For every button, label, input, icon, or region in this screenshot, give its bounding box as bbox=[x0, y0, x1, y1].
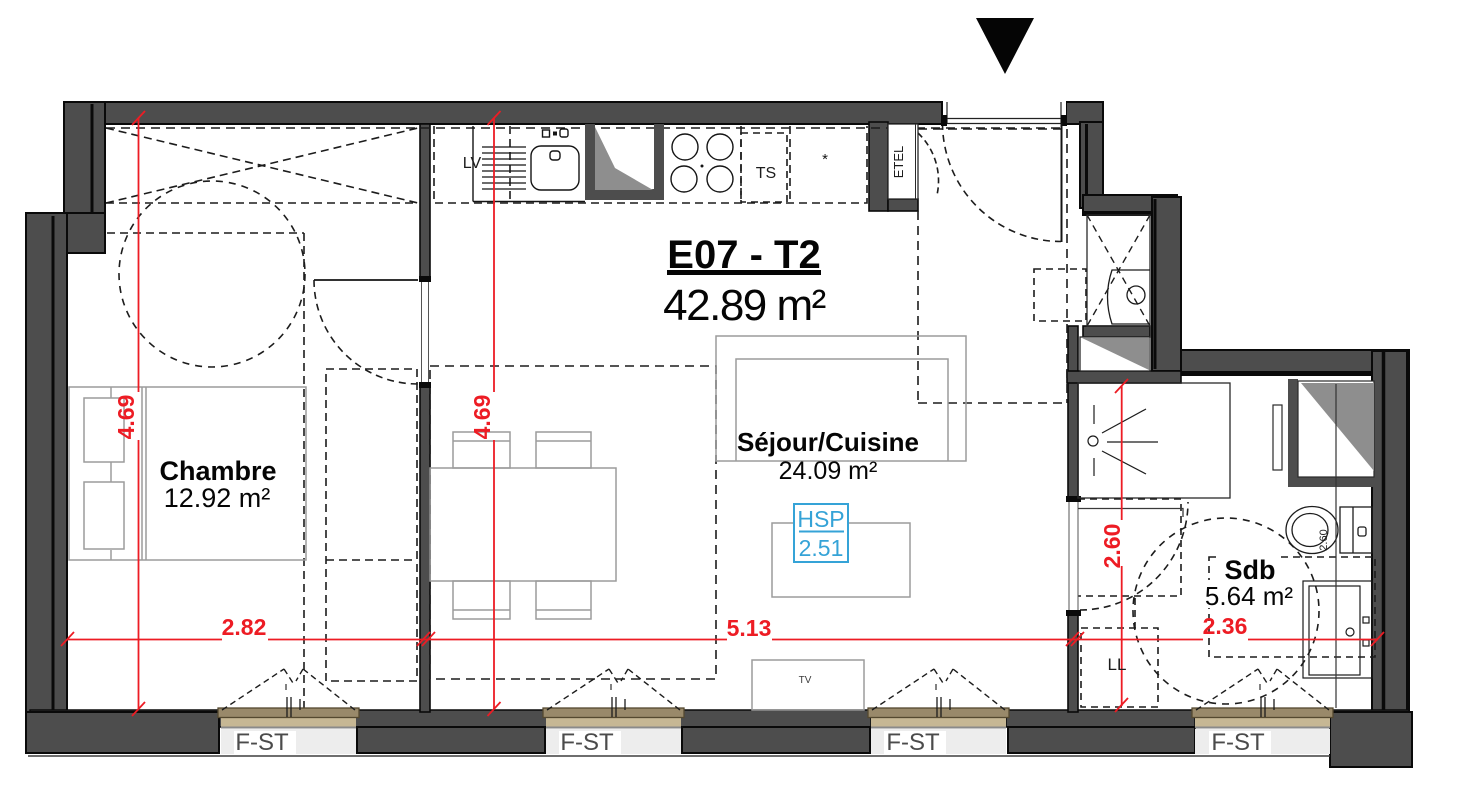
svg-text:TV: TV bbox=[799, 675, 812, 686]
svg-text:2.36: 2.36 bbox=[1203, 613, 1248, 639]
svg-text:42.89 m²: 42.89 m² bbox=[663, 281, 825, 330]
svg-text:4.69: 4.69 bbox=[469, 395, 495, 440]
svg-text:5.13: 5.13 bbox=[727, 615, 772, 641]
svg-text:F-ST: F-ST bbox=[235, 729, 289, 756]
svg-text:LL: LL bbox=[1108, 655, 1127, 674]
svg-text:HSP: HSP bbox=[797, 506, 844, 532]
svg-text:LV: LV bbox=[463, 155, 482, 172]
svg-text:2.82: 2.82 bbox=[222, 614, 267, 640]
svg-text:*: * bbox=[822, 151, 828, 168]
svg-text:5.64 m²: 5.64 m² bbox=[1205, 581, 1293, 611]
svg-text:12.92 m²: 12.92 m² bbox=[164, 483, 271, 513]
svg-text:F-ST: F-ST bbox=[886, 729, 940, 756]
svg-text:4.69: 4.69 bbox=[113, 395, 139, 440]
svg-text:TS: TS bbox=[756, 165, 776, 182]
svg-text:Séjour/Cuisine: Séjour/Cuisine bbox=[737, 427, 919, 457]
svg-text:ETEL: ETEL bbox=[891, 146, 906, 179]
svg-text:F-ST: F-ST bbox=[560, 729, 614, 756]
svg-text:2.51: 2.51 bbox=[799, 535, 844, 561]
svg-text:Chambre: Chambre bbox=[159, 456, 276, 486]
svg-text:2.60: 2.60 bbox=[1099, 524, 1125, 569]
svg-text:24.09 m²: 24.09 m² bbox=[779, 457, 878, 485]
svg-text:F-ST: F-ST bbox=[1211, 729, 1265, 756]
svg-text:2.60: 2.60 bbox=[1318, 529, 1330, 550]
